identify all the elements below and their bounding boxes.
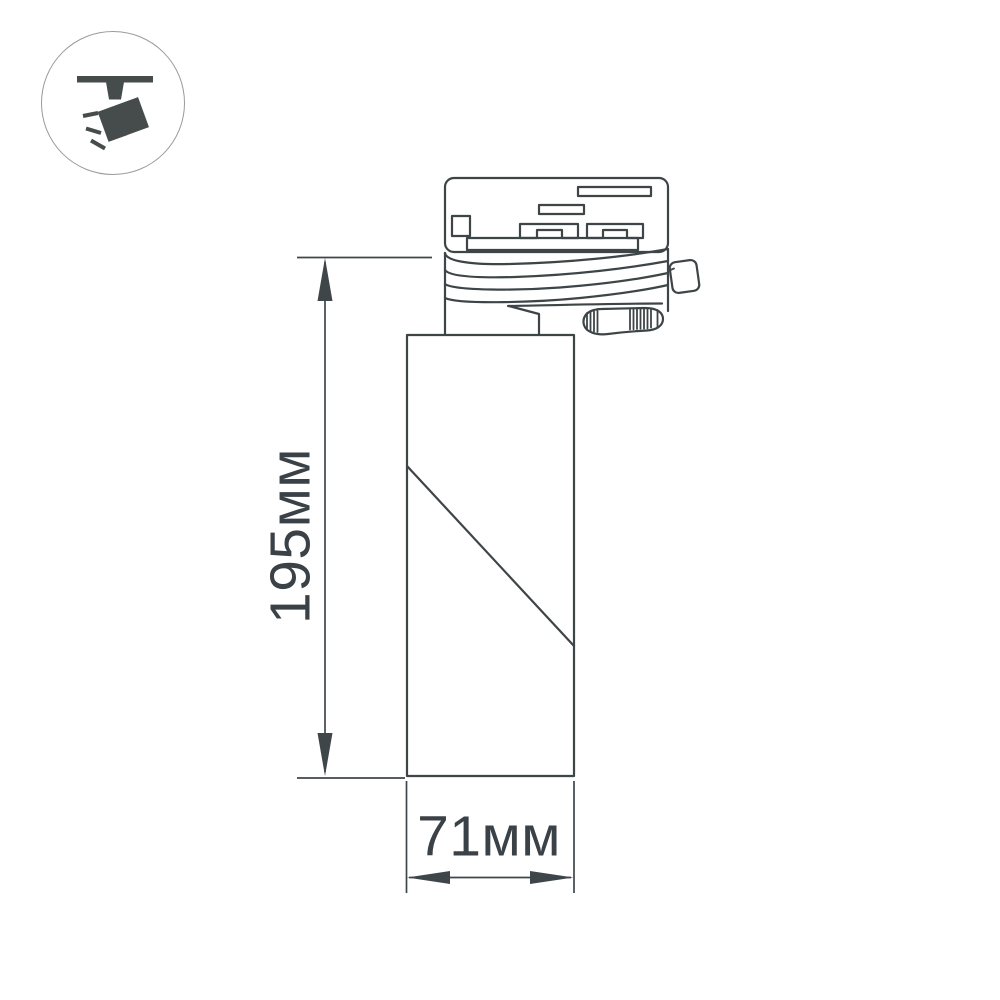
track-adapter-drawing (445, 178, 668, 252)
dimension-height-label: 195мм (263, 448, 320, 624)
locking-knob-drawing (583, 308, 663, 334)
release-lever-drawing (668, 259, 700, 293)
dimension-width-label: 71мм (417, 809, 561, 866)
fixture-body-drawing (407, 335, 574, 776)
drawing-canvas: 195мм 71мм (0, 0, 1000, 1000)
body-seam-line (407, 466, 574, 646)
